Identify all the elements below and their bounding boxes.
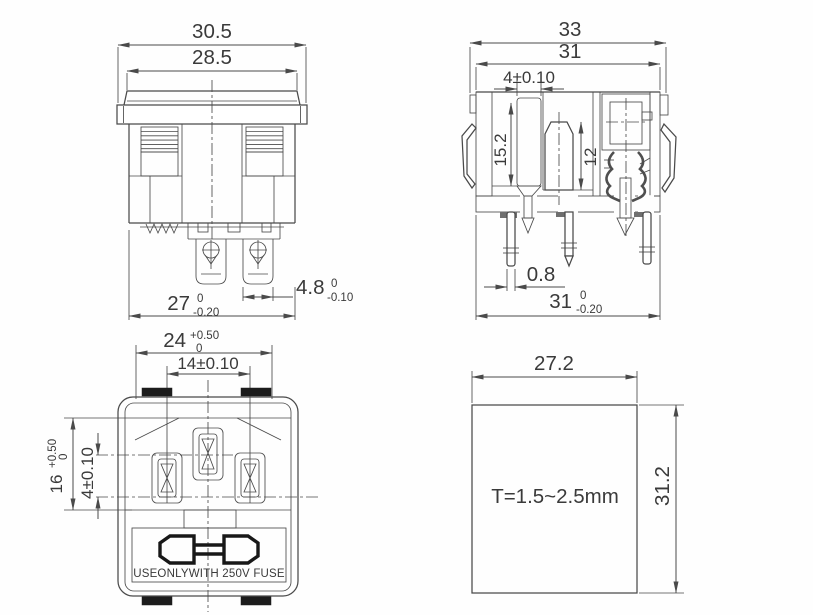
dim-tol-upper: +0.50 [47,439,59,468]
dim-tol-lower: -0.10 [327,292,353,304]
dim-text-flange-width: 31 [559,40,582,63]
drawing-svg: 30.5 28.5 [0,0,813,615]
right-wall-section [650,92,660,196]
panel-cutout-view: 27.2 31.2 T=1.5~2.5mm [472,352,684,593]
solder-pin-right [643,212,651,264]
fuse-cap-left [160,536,194,563]
fuse-holder: USEONLYWITH 250V FUSE [132,510,286,582]
dim-earth-pin-offset: 4±0.10 [78,433,98,519]
dim-text-solder-pin-thickness: 0.8 [527,263,556,286]
dim-text-opening-width: 24 [163,329,186,352]
fuse-warning-text: USEONLYWITH 250V FUSE [133,568,285,580]
dim-text-cap-width: 28.5 [192,46,232,69]
front-body-geometry [117,80,307,284]
dim-terminal-width-4-8: 4.8 0 -0.10 [243,276,353,304]
dim-tol-upper: 0 [197,293,203,305]
dim-text-overall-width: 30.5 [192,20,232,43]
dim-cavity-depth: 12 [581,122,600,190]
dim-text-earth-pin-width: 4±0.10 [503,68,555,87]
dim-body-width-27: 27 0 -0.20 [129,230,295,320]
dim-text-earth-pin-depth: 15.2 [491,133,510,166]
dim-text-cutout-height: 31.2 [651,466,674,506]
fuse-cap-right [224,536,258,563]
dim-solder-pin-thickness: 0.8 [484,263,565,291]
mounting-tab-bottom-left [142,596,172,605]
dim-tol-upper: +0.50 [190,330,219,342]
dim-text-body-width: 27 [167,292,190,315]
chamfer-right [237,418,281,440]
left-wall-section [476,92,492,196]
dim-tol-upper: 0 [331,278,337,290]
line-contact-section [545,112,573,205]
fuse-clip-right-arm [632,152,646,201]
dim-earth-pin-depth: 15.2 [491,103,511,186]
spring-contact [146,224,178,233]
face-view: 24 +0.50 0 14±0.10 [47,329,321,612]
solder-terminal-left [196,239,226,284]
front-view: 30.5 28.5 [117,20,353,320]
dim-text-opening-height: 16 [47,475,66,494]
right-latch [242,124,295,223]
dim-text-pin-spacing: 14±0.10 [177,354,238,373]
left-latch [129,124,182,223]
dim-text-cavity-depth: 12 [581,148,600,167]
dim-tol-lower: -0.20 [576,304,602,316]
dim-cutout-height: 31.2 [639,405,684,593]
dim-cutout-width: 27.2 [472,352,637,403]
mounting-tab-top-right [241,388,271,396]
dim-tol-lower: 0 [58,454,70,460]
dim-tol-upper: 0 [580,290,586,302]
chamfer-left [135,418,179,440]
dim-text-terminal-width: 4.8 [296,276,325,299]
side-section-view: 33 31 4±0.10 [462,18,676,320]
technical-drawing-canvas: 30.5 28.5 [0,0,813,615]
face-body: USEONLYWITH 250V FUSE [96,380,321,612]
section-body [462,92,676,266]
mounting-tab-bottom-right [241,596,271,605]
dim-pin-spacing-14: 14±0.10 [167,354,250,503]
solder-pin-left [507,212,515,266]
terminal-bracket [188,223,280,239]
left-rib [470,95,476,113]
dim-tol-lower: -0.20 [193,307,219,319]
dim-text-overall-width: 33 [559,18,582,41]
fuse-clip-left-arm [606,152,620,201]
solder-terminal-right [243,239,273,284]
dim-text-cutout-width: 27.2 [534,352,574,375]
dim-text-earth-pin-offset: 4±0.10 [78,447,97,499]
solder-pin-middle [565,212,573,256]
right-latch-wing [661,124,676,192]
panel-thickness-note: T=1.5~2.5mm [491,485,619,508]
left-latch-wing [462,124,476,188]
right-rib [660,95,668,115]
mounting-tab-top-left [142,388,172,396]
dim-text-flange-width-bottom: 31 [549,290,572,313]
